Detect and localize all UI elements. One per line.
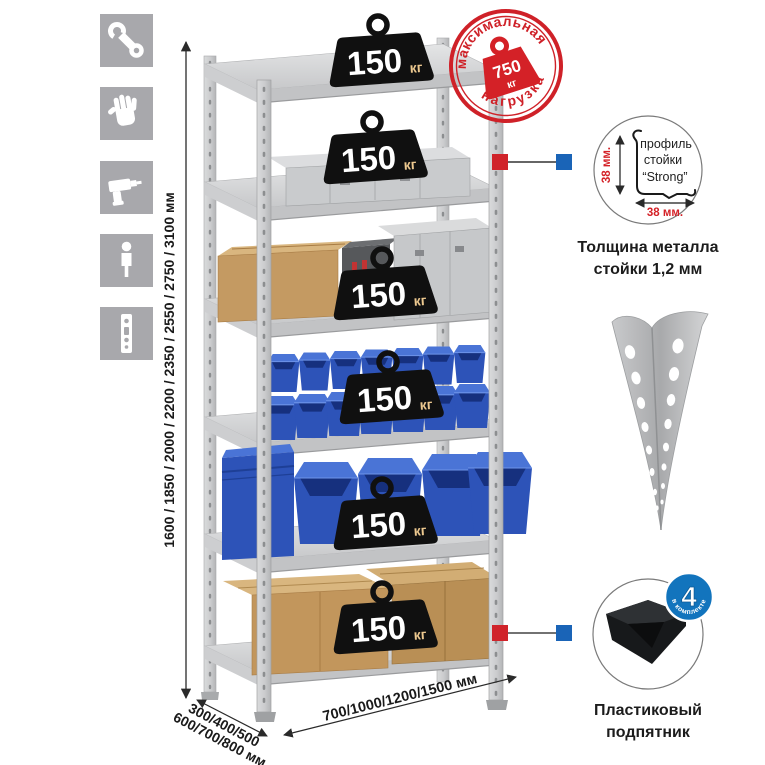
person-feature xyxy=(100,234,153,287)
foot-front-left xyxy=(254,712,276,722)
metal-angle-post xyxy=(612,312,708,530)
profile-label-2: стойки xyxy=(644,153,682,167)
profile-label-1: профиль xyxy=(640,137,692,151)
profile-callout-diagram: 38 мм. 38 мм. профиль стойки “Strong” xyxy=(594,116,702,224)
included-arc-text: в комплекте xyxy=(0,1,19,19)
profile-caption-line1: Толщина металла xyxy=(553,237,743,259)
gloves-feature xyxy=(100,87,153,140)
leader-red-square-bottom xyxy=(492,625,508,641)
svg-text:в комплекте: в комплекте xyxy=(0,1,19,19)
foot-caption-line2: подпятник xyxy=(553,722,743,744)
profile-leader xyxy=(492,154,572,170)
width-dimension: 700/1000/1200/1500 мм xyxy=(284,671,516,735)
height-dimension-label: 1600 / 1850 / 2000 / 2200 / 2350 / 2550 … xyxy=(161,192,177,547)
foot-caption-line1: Пластиковый xyxy=(553,700,743,722)
wrench-icon xyxy=(100,14,153,67)
profile-label-3: “Strong” xyxy=(642,170,687,184)
wrench-feature xyxy=(100,14,153,67)
leader-blue-square-bottom xyxy=(556,625,572,641)
foot-caption: Пластиковый подпятник xyxy=(553,700,743,743)
profile-caption-line2: стойки 1,2 мм xyxy=(553,259,743,281)
width-dimension-label: 700/1000/1200/1500 мм xyxy=(321,671,479,725)
leader-red-square-top xyxy=(492,154,508,170)
profile-dim-vertical: 38 мм. xyxy=(601,147,613,183)
rack-post-icon xyxy=(100,307,153,360)
profile-caption: Толщина металла стойки 1,2 мм xyxy=(553,237,743,280)
foot-leader xyxy=(492,625,572,641)
person-icon xyxy=(100,234,153,287)
foot-back-left xyxy=(201,692,219,700)
included-count: 4 xyxy=(681,581,697,612)
max-load-stamp: максимальная нагрузка 750 кг xyxy=(437,0,576,135)
profile-dim-horizontal: 38 мм. xyxy=(647,207,683,219)
drill-icon xyxy=(100,161,153,214)
foot-front-right xyxy=(486,700,508,710)
leader-blue-square-top xyxy=(556,154,572,170)
drill-feature xyxy=(100,161,153,214)
height-dimension: 1600 / 1850 / 2000 / 2200 / 2350 / 2550 … xyxy=(161,42,186,698)
infographic-canvas: 150 кг 1600 / 1850 / 2000 / 2200 / 2350 … xyxy=(0,0,765,765)
gloves-icon xyxy=(100,87,153,140)
rack-post-feature xyxy=(100,307,153,360)
